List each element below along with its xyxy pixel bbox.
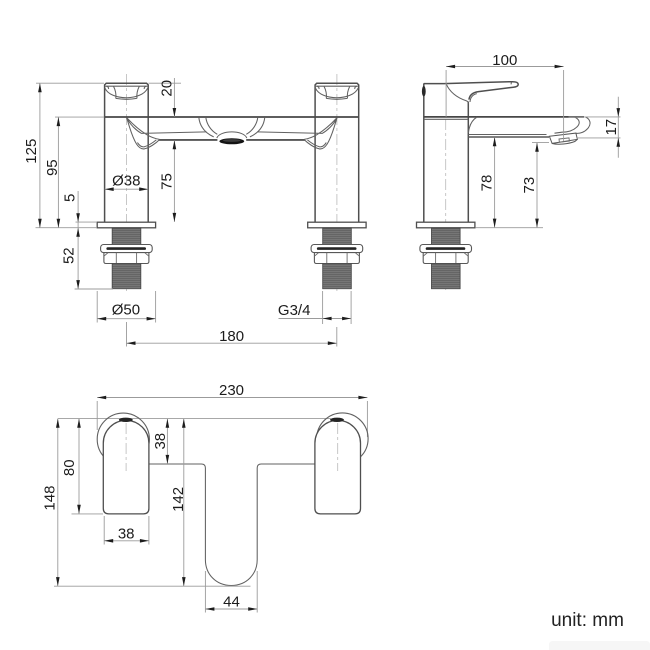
svg-text:180: 180 (219, 328, 244, 345)
svg-text:78: 78 (479, 175, 496, 192)
svg-text:17: 17 (603, 119, 620, 136)
svg-text:95: 95 (44, 159, 61, 176)
svg-text:230: 230 (219, 382, 244, 399)
svg-text:Ø50: Ø50 (112, 301, 140, 318)
svg-text:100: 100 (492, 52, 517, 69)
svg-text:G3/4: G3/4 (278, 302, 311, 319)
svg-text:5: 5 (62, 194, 79, 202)
svg-text:20: 20 (159, 80, 176, 97)
svg-text:75: 75 (159, 173, 176, 190)
svg-text:73: 73 (521, 177, 538, 194)
svg-text:80: 80 (61, 459, 78, 476)
svg-text:142: 142 (170, 487, 187, 512)
svg-text:38: 38 (118, 525, 135, 542)
svg-text:unit: mm: unit: mm (551, 610, 624, 631)
svg-text:Ø38: Ø38 (112, 173, 140, 190)
svg-text:44: 44 (223, 593, 240, 610)
svg-text:148: 148 (41, 486, 58, 511)
svg-text:38: 38 (152, 433, 169, 450)
svg-text:52: 52 (60, 247, 77, 264)
svg-text:125: 125 (23, 139, 40, 164)
